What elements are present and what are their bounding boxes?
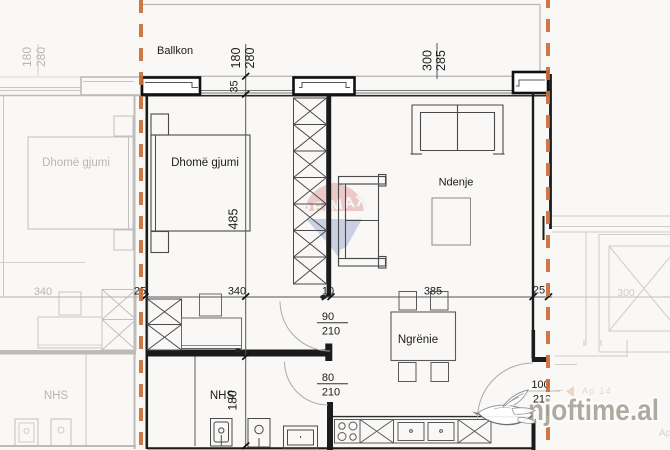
svg-text:njoftime.al: njoftime.al <box>528 394 659 427</box>
svg-text:385: 385 <box>424 286 442 298</box>
svg-text:Ballkon: Ballkon <box>157 45 193 57</box>
svg-text:280: 280 <box>34 47 48 67</box>
svg-text:180: 180 <box>226 390 240 410</box>
svg-text:280: 280 <box>243 48 257 69</box>
svg-text:340: 340 <box>228 286 246 298</box>
svg-text:285: 285 <box>434 50 448 71</box>
svg-text:485: 485 <box>227 209 241 230</box>
svg-text:Ngrënie: Ngrënie <box>398 334 438 346</box>
svg-text:10: 10 <box>322 286 334 298</box>
svg-text:NHS: NHS <box>44 390 69 402</box>
svg-text:Ndenje: Ndenje <box>439 177 474 189</box>
svg-text:35: 35 <box>229 80 241 92</box>
svg-text:340: 340 <box>34 286 52 298</box>
svg-text:210: 210 <box>322 387 340 399</box>
svg-text:90: 90 <box>322 311 334 323</box>
svg-text:Dhomë gjumi: Dhomë gjumi <box>171 157 239 169</box>
svg-text:Dhomë gjumi: Dhomë gjumi <box>42 157 110 169</box>
svg-text:25: 25 <box>533 285 545 297</box>
svg-text:180: 180 <box>20 47 34 67</box>
svg-text:Ap: Ap <box>659 428 670 439</box>
svg-text:210: 210 <box>322 326 340 338</box>
svg-text:300: 300 <box>421 50 435 71</box>
svg-text:80: 80 <box>322 372 334 384</box>
svg-text:180: 180 <box>229 48 243 69</box>
